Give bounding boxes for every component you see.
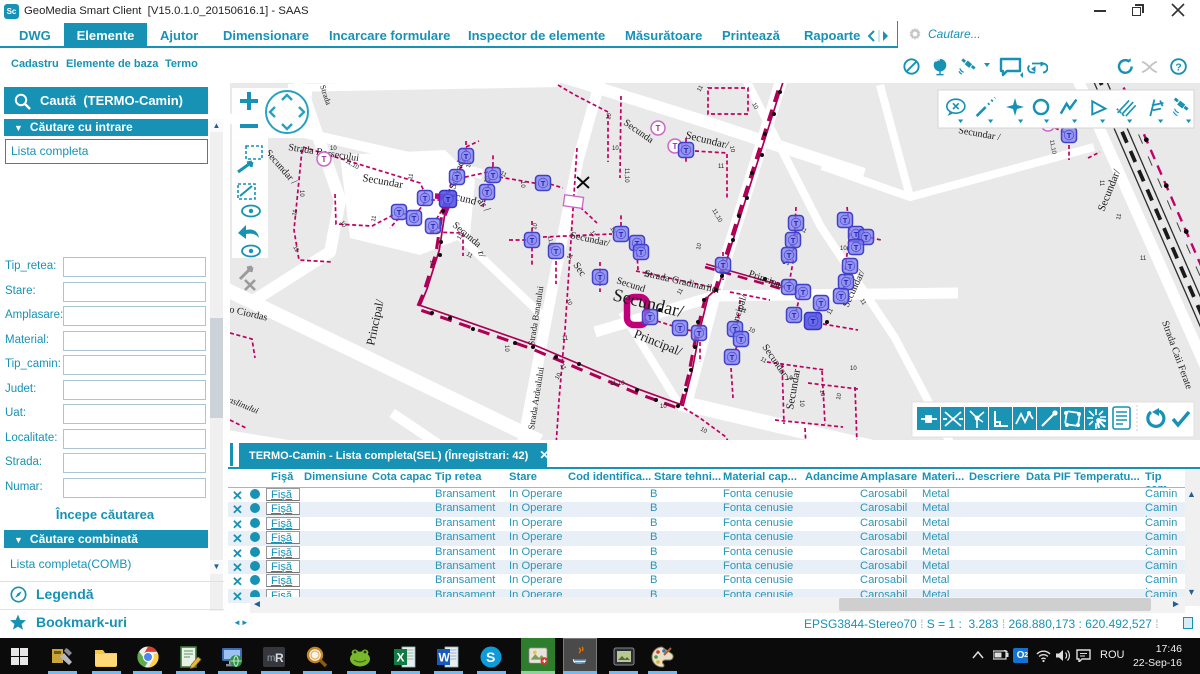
svg-text:10: 10: [798, 400, 804, 407]
svg-text:10: 10: [519, 181, 525, 188]
svg-text:10: 10: [660, 404, 667, 410]
svg-text:11: 11: [718, 164, 725, 170]
svg-text:R: R: [275, 651, 284, 665]
svg-text:10: 10: [503, 345, 509, 352]
svg-text:X: X: [397, 651, 405, 665]
svg-text:10: 10: [298, 190, 304, 197]
svg-text:11,10: 11,10: [610, 381, 625, 387]
svg-text:W: W: [439, 651, 451, 665]
svg-text:T: T: [673, 142, 678, 151]
svg-text:11,10: 11,10: [623, 168, 629, 183]
svg-text:11: 11: [1140, 256, 1147, 262]
svg-text:T: T: [656, 124, 661, 133]
svg-text:11: 11: [562, 336, 569, 342]
svg-text:10: 10: [612, 146, 619, 152]
svg-text:10: 10: [850, 366, 857, 372]
svg-text:S: S: [486, 649, 495, 665]
svg-text:T: T: [322, 155, 327, 164]
svg-text:10: 10: [840, 246, 847, 252]
svg-text:?: ?: [1175, 62, 1181, 73]
svg-text:11: 11: [1098, 180, 1104, 187]
